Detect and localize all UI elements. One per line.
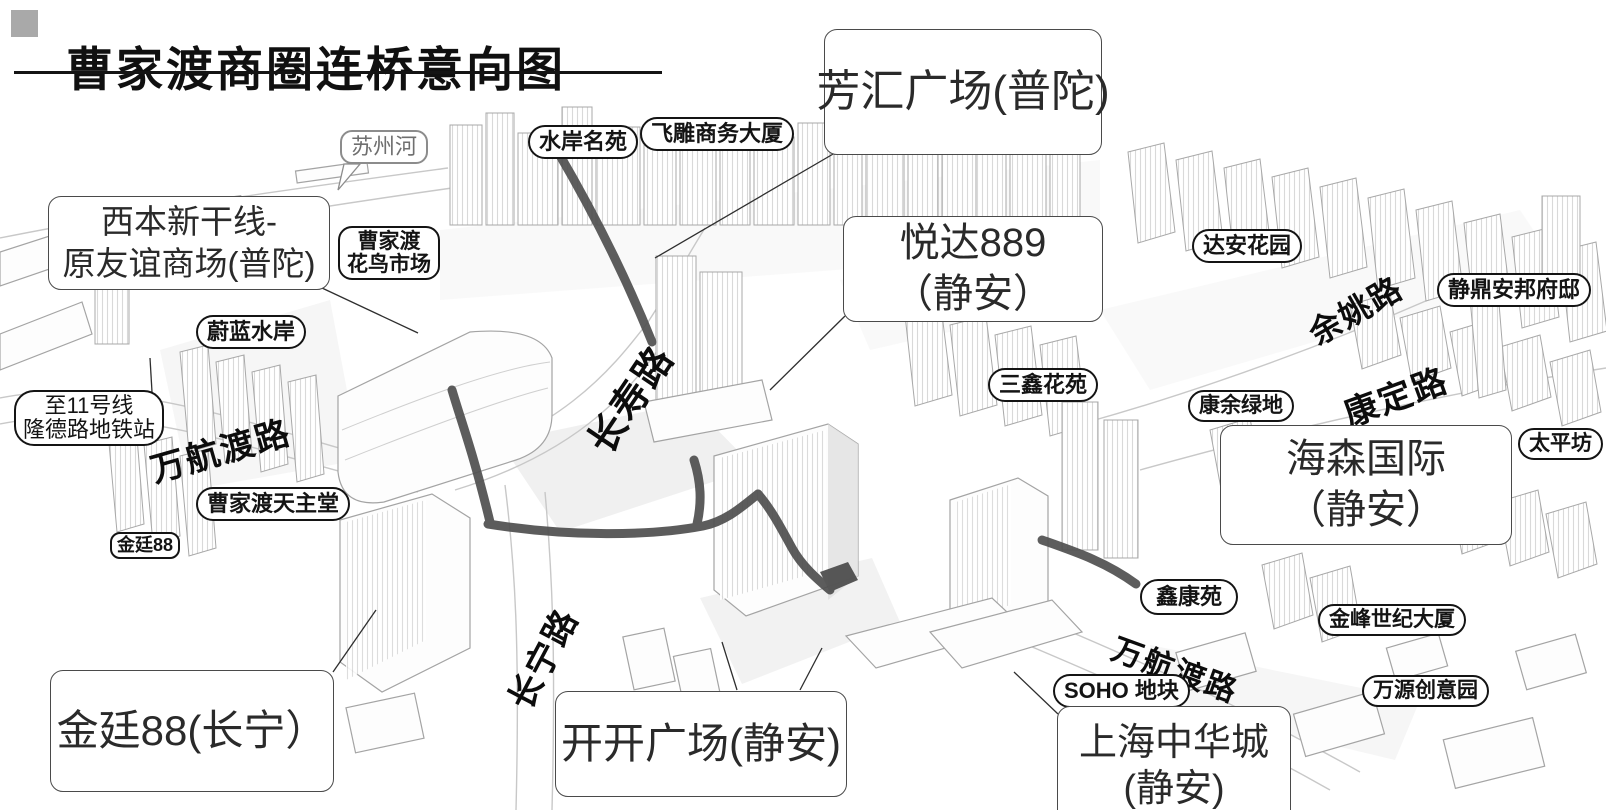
pill-caojiadu-catholic-church: 曹家渡天主堂	[196, 487, 350, 521]
callout-jinting-88: 金廷88(长宁）	[50, 670, 334, 792]
pill-caojiadu-flower-bird-market: 曹家渡 花鸟市场	[338, 226, 440, 280]
callout-kaikai-plaza: 开开广场(静安)	[555, 691, 847, 797]
page-title: 曹家渡商圈连桥意向图	[66, 31, 566, 100]
pill-jinfeng-century-tower: 金峰世纪大厦	[1318, 604, 1466, 636]
callout-xiben-shinkansen: 西本新干线- 原友谊商场(普陀)	[48, 196, 330, 290]
callout-shanghai-zhonghua-city: 上海中华城 (静安)	[1057, 706, 1291, 810]
callout-haisen-international: 海森国际 （静安）	[1220, 425, 1512, 545]
callout-fanghui-plaza: 芳汇广场(普陀)	[824, 29, 1102, 155]
pill-kangyu-greenland: 康余绿地	[1188, 390, 1294, 422]
title-bullet-icon	[11, 10, 38, 37]
pill-suzhou-river: 苏州河	[340, 130, 428, 164]
pill-jingding-anbang-mansion: 静鼎安邦府邸	[1437, 273, 1591, 307]
pill-shuian-mingyuan: 水岸名苑	[528, 125, 638, 159]
pill-wanyuan-creative-park: 万源创意园	[1362, 675, 1489, 707]
callout-yueda-889: 悦达889 （静安）	[843, 216, 1103, 322]
pill-metro-line11-longde-road-station: 至11号线 隆德路地铁站	[14, 390, 164, 446]
pill-sanxin-garden: 三鑫花苑	[988, 368, 1098, 402]
pill-taiping-fang: 太平坊	[1518, 428, 1603, 460]
pill-daan-garden: 达安花园	[1192, 229, 1302, 263]
pill-feidiao-business-tower: 飞雕商务大厦	[640, 117, 794, 151]
pill-jinting-88-small: 金廷88	[110, 532, 180, 559]
caojiadu-bridge-intent-map: .tw{fill:url(#vs);stroke:#a8a8a8;stroke-…	[0, 0, 1606, 810]
title-underline	[14, 71, 662, 74]
pill-weilan-shuian: 蔚蓝水岸	[196, 315, 306, 349]
pill-xinkang-yuan: 鑫康苑	[1140, 579, 1238, 615]
pill-soho-plot: SOHO 地块	[1053, 674, 1190, 708]
